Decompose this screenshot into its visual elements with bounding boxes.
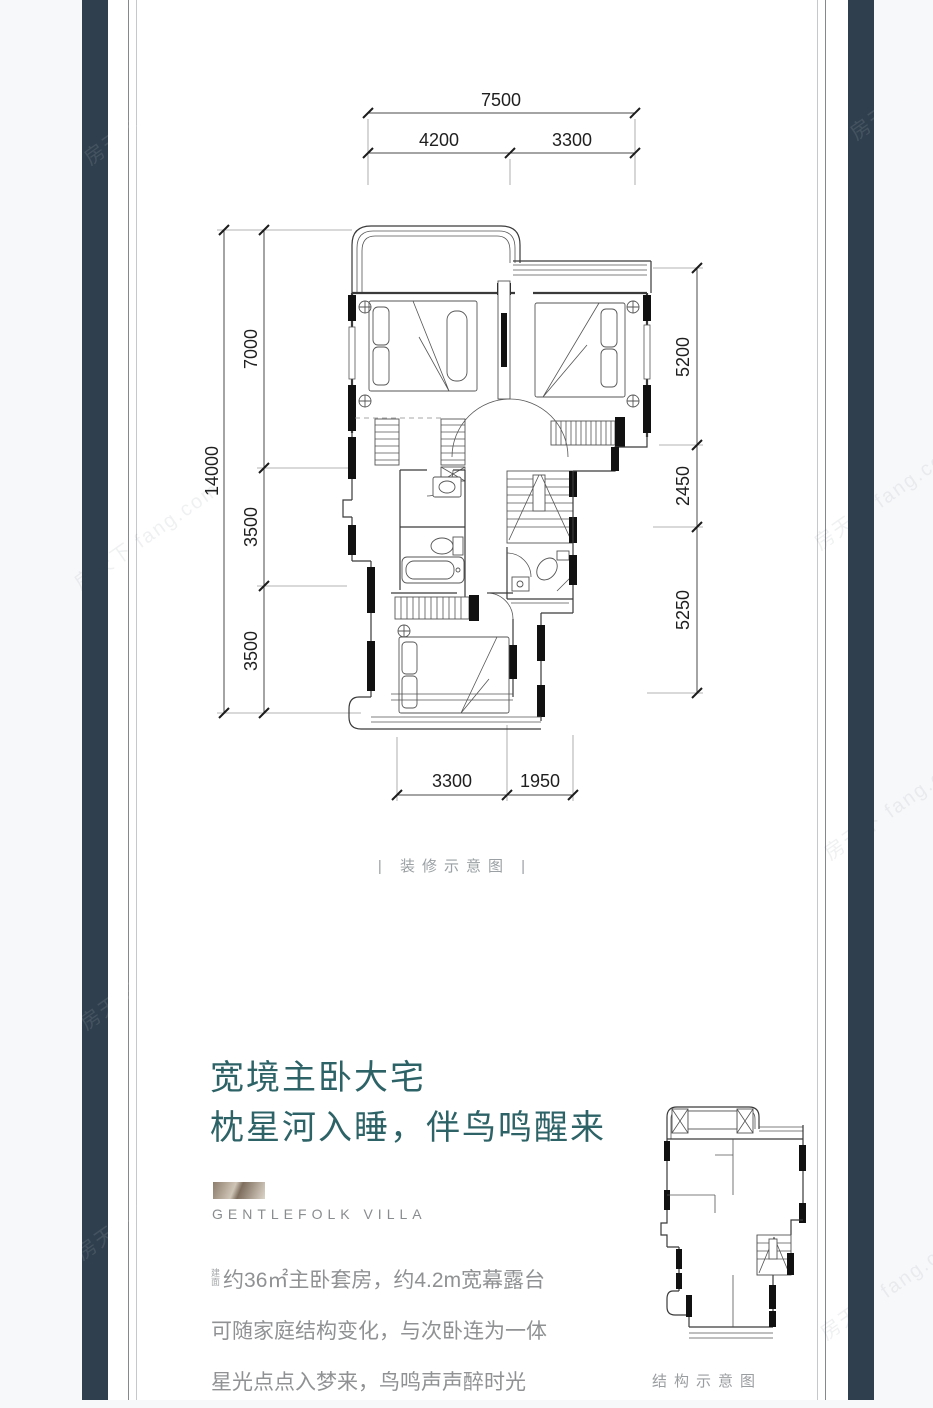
headline-line2: 枕星河入睡，伴鸟鸣醒来 [210, 1103, 606, 1153]
poster-page: { "watermark": "房天下 fang.com", "floorpla… [0, 0, 933, 1400]
dim-label-left-b: 3500 [241, 507, 261, 547]
brand-name: GENTLEFOLK VILLA [212, 1206, 427, 1222]
description-line-3: 星光点点入梦来，鸟鸣声声醉时光 [211, 1357, 547, 1408]
headline-line1: 宽境主卧大宅 [210, 1053, 606, 1103]
frame-line-left-outer [128, 0, 129, 1400]
area-prefix: 建面 [211, 1269, 220, 1287]
description-block: 建面约36㎡主卧套房，约4.2m宽幕露台 可随家庭结构变化，与次卧连为一体 星光… [211, 1255, 547, 1408]
dim-chain-right: 5200 2450 5250 [647, 263, 703, 698]
stairs [507, 471, 577, 543]
dim-label-bottom-a: 3300 [432, 771, 472, 791]
bed-second [535, 303, 625, 397]
bed-master [369, 301, 477, 391]
bathroom-main [400, 470, 465, 600]
description-line-2: 可随家庭结构变化，与次卧连为一体 [211, 1306, 547, 1357]
dim-label-left-total: 14000 [202, 446, 222, 496]
center-partition-wall [498, 281, 510, 399]
frame-line-right-outer [825, 0, 826, 1400]
bedroom-bottom [391, 593, 517, 713]
right-accent-bar [848, 0, 874, 1400]
dim-chain-left: 14000 7000 3500 3500 [202, 225, 361, 718]
bathroom-small [507, 547, 573, 603]
dim-label-top-total: 7500 [481, 90, 521, 110]
floorplan-caption: | 装修示意图 | [195, 855, 715, 876]
structure-diagram [642, 1095, 818, 1363]
dim-label-right-b: 2450 [673, 466, 693, 506]
structure-outline [661, 1107, 806, 1338]
dim-label-right-a: 5200 [673, 337, 693, 377]
dim-label-bottom-b: 1950 [520, 771, 560, 791]
dim-label-top-b: 3300 [552, 130, 592, 150]
structure-caption: 结构示意图 [652, 1370, 762, 1391]
dim-chain-bottom: 3300 1950 [392, 725, 578, 801]
dim-label-left-a: 7000 [241, 329, 261, 369]
dim-label-left-c: 3500 [241, 631, 261, 671]
floor-plan-drawing: 7500 4200 3300 14000 7000 3500 3500 5200… [195, 85, 715, 815]
dim-label-top-a: 4200 [419, 130, 459, 150]
dim-label-right-c: 5250 [673, 590, 693, 630]
headline: 宽境主卧大宅 枕星河入睡，伴鸟鸣醒来 [210, 1053, 606, 1153]
frame-line-left-inner [136, 0, 137, 1400]
balcony-top [352, 226, 520, 293]
description-line-1: 建面约36㎡主卧套房，约4.2m宽幕露台 [211, 1255, 547, 1306]
exterior-walls-left-lower [343, 433, 375, 697]
brand-logo [213, 1182, 265, 1199]
left-accent-bar [82, 0, 108, 1400]
terrace-railing [513, 261, 651, 293]
dim-chain-top: 7500 4200 3300 [363, 90, 640, 185]
